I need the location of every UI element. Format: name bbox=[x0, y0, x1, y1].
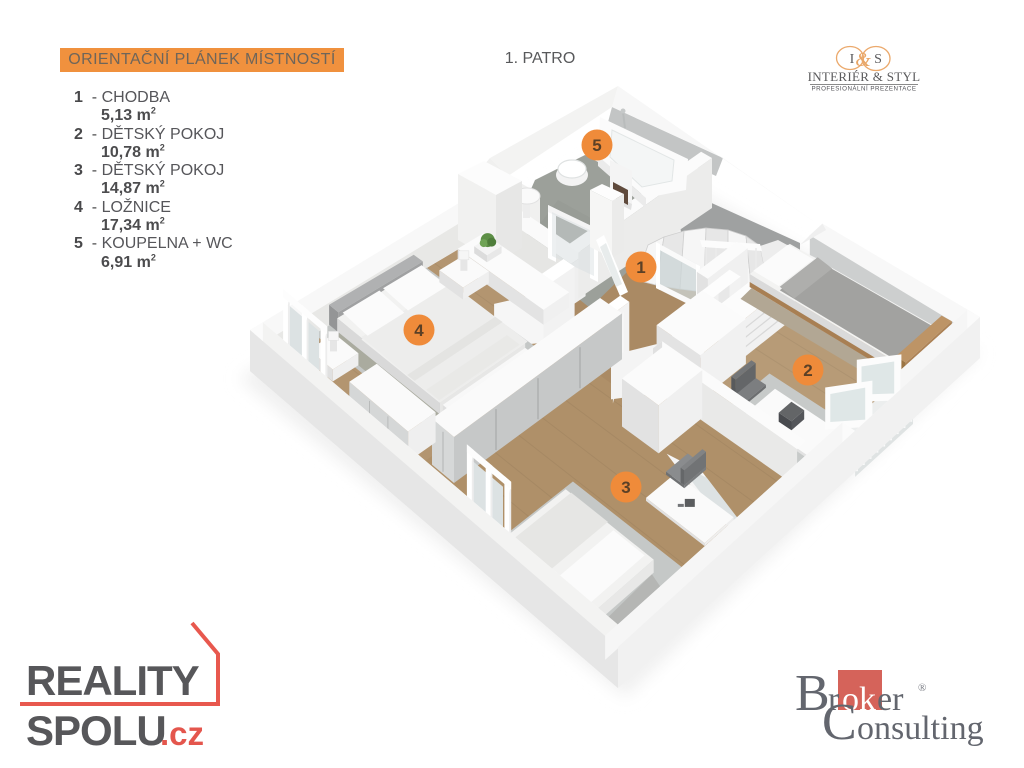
svg-text:REALITY: REALITY bbox=[26, 657, 200, 704]
svg-text:5: 5 bbox=[592, 136, 601, 155]
svg-text:onsulting: onsulting bbox=[857, 710, 984, 747]
svg-text:.cz: .cz bbox=[160, 715, 204, 752]
svg-text:2: 2 bbox=[803, 361, 812, 380]
svg-text:C: C bbox=[822, 694, 857, 751]
svg-text:®: ® bbox=[918, 682, 926, 694]
svg-text:4: 4 bbox=[414, 321, 424, 340]
svg-text:3: 3 bbox=[621, 478, 630, 497]
svg-text:1: 1 bbox=[636, 258, 645, 277]
svg-text:SPOLU: SPOLU bbox=[26, 707, 166, 754]
